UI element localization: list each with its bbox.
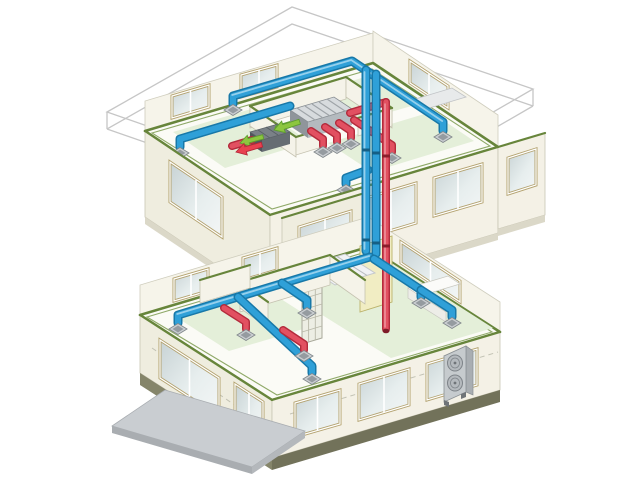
hvac-cutaway-illustration — [0, 0, 640, 480]
supply-risers — [365, 70, 377, 254]
fan-grille — [448, 375, 463, 391]
return-riser — [385, 102, 386, 329]
fan-grille — [448, 355, 463, 371]
window — [508, 149, 536, 194]
